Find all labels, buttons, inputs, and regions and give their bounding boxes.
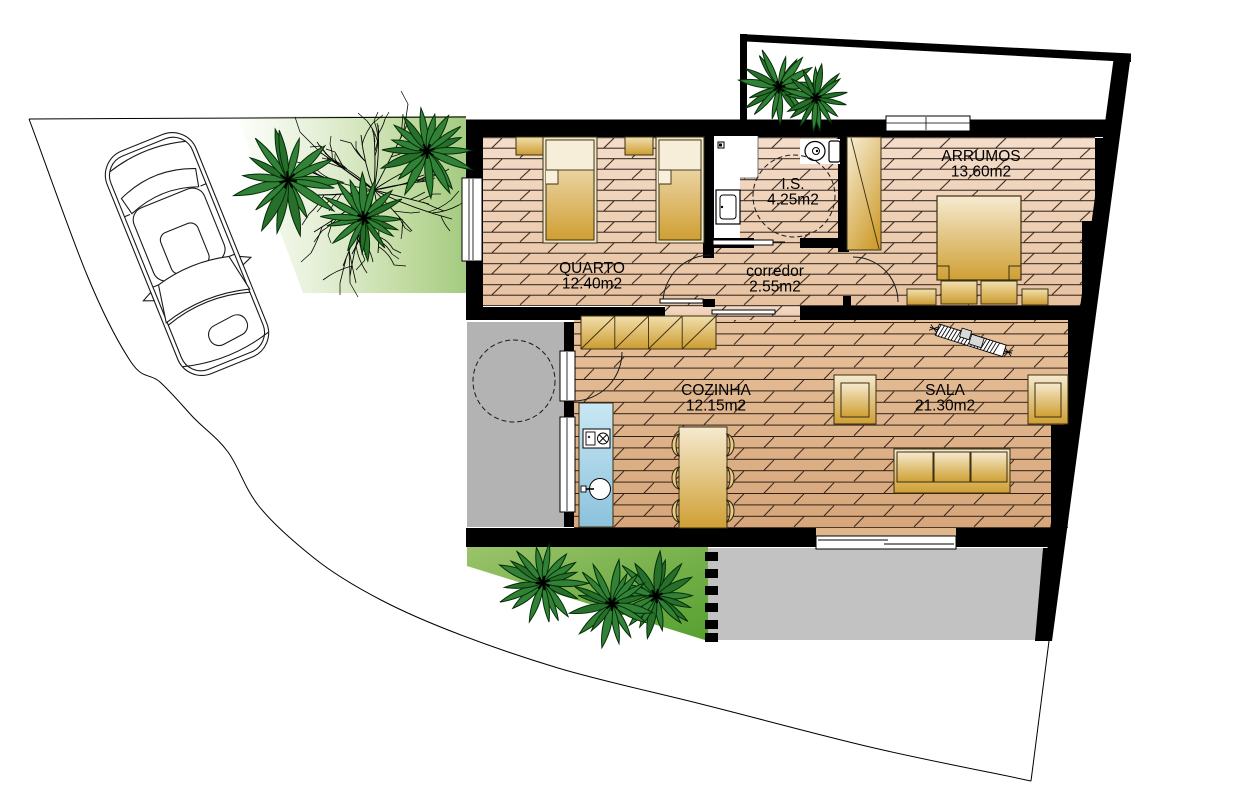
svg-text:12.15m2: 12.15m2 [686, 398, 746, 415]
svg-text:QUARTO: QUARTO [559, 260, 625, 277]
svg-text:corredor: corredor [746, 263, 804, 280]
svg-text:4.25m2: 4.25m2 [767, 192, 819, 209]
svg-text:12.40m2: 12.40m2 [562, 276, 622, 293]
svg-text:SALA: SALA [925, 382, 965, 399]
svg-text:ARRUMOS: ARRUMOS [941, 148, 1020, 165]
svg-text:2.55m2: 2.55m2 [749, 279, 801, 296]
svg-text:COZINHA: COZINHA [681, 382, 751, 399]
svg-text:13.60m2: 13.60m2 [951, 164, 1011, 181]
svg-text:21.30m2: 21.30m2 [915, 398, 975, 415]
svg-text:I.S.: I.S. [781, 176, 804, 193]
